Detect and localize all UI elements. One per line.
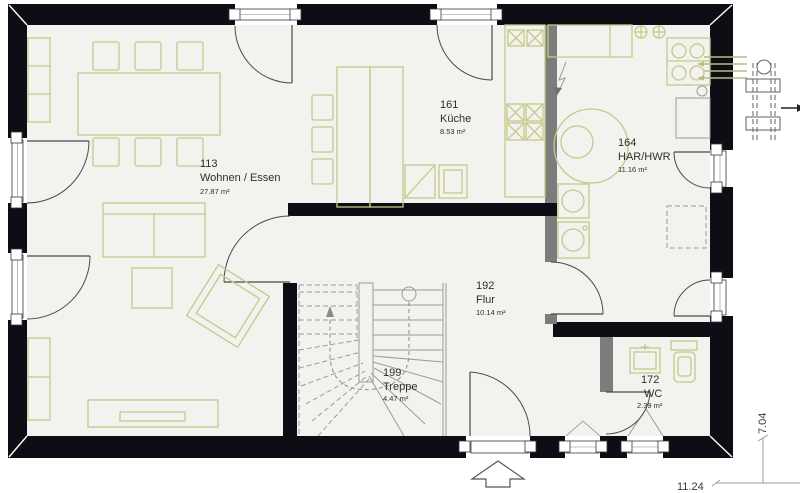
room-number: 192 <box>476 280 494 292</box>
dimension-width: 11.24 <box>677 481 704 493</box>
wall-hwr-wc <box>553 322 710 337</box>
room-name: WC <box>644 388 662 400</box>
partition-flur-hwr <box>545 216 557 262</box>
room-number: 113 <box>200 158 218 170</box>
partition-flur-hwr-low <box>545 314 557 324</box>
partition-wc <box>600 337 613 392</box>
entrance-threshold <box>471 441 529 453</box>
room-name: Flur <box>476 294 495 306</box>
room-number: 199 <box>383 367 401 379</box>
room-number: 161 <box>440 99 458 111</box>
entrance-arrow <box>472 461 524 487</box>
room-name: Küche <box>440 113 471 125</box>
room-area: 2.39 m² <box>637 401 663 410</box>
room-area: 10.14 m² <box>476 308 506 317</box>
room-area: 27.87 m² <box>200 187 230 196</box>
room-number: 164 <box>618 137 636 149</box>
wall-kitchen-flur <box>288 203 557 216</box>
room-name: HAR/HWR <box>618 151 671 163</box>
room-area: 8.53 m² <box>440 127 466 136</box>
room-name: Wohnen / Essen <box>200 172 281 184</box>
room-name: Treppe <box>383 381 417 393</box>
room-area: 4.47 m² <box>383 394 409 403</box>
dimension-height: 7.04 <box>757 413 769 434</box>
room-area: 11.16 m² <box>618 165 648 174</box>
partition-kitchen-hwr <box>545 25 557 203</box>
room-number: 172 <box>641 374 659 386</box>
heat-pump-outdoor-unit <box>746 60 800 140</box>
floorplan-canvas: 7.04 11.24 113 Wohnen / Essen 27.87 m² 1… <box>0 0 800 493</box>
wall-stair-side <box>283 283 297 436</box>
floorplan-drawing: 7.04 11.24 113 Wohnen / Essen 27.87 m² 1… <box>0 0 800 493</box>
